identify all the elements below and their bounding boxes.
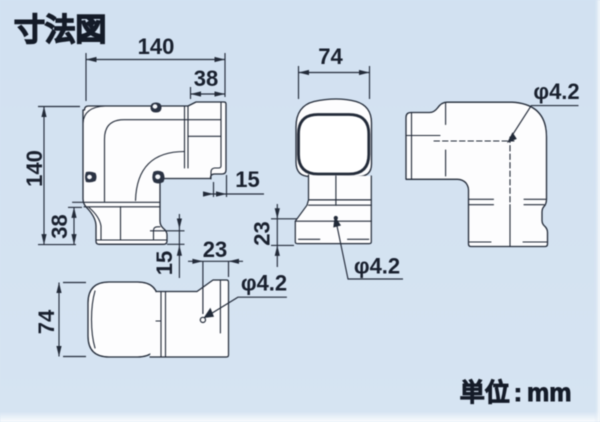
svg-text:38: 38	[47, 214, 72, 238]
svg-text:φ4.2: φ4.2	[533, 79, 579, 104]
svg-text:15: 15	[152, 251, 177, 275]
svg-text:38: 38	[194, 66, 218, 91]
svg-text:74: 74	[34, 309, 59, 334]
svg-text:23: 23	[203, 237, 227, 262]
svg-text:140: 140	[138, 34, 175, 59]
svg-text:74: 74	[318, 44, 343, 69]
svg-text:寸法図: 寸法図	[14, 13, 106, 48]
svg-text:φ4.2: φ4.2	[354, 254, 400, 279]
svg-text:単位:mm: 単位:mm	[460, 378, 572, 407]
svg-text:23: 23	[250, 221, 275, 245]
svg-text:15: 15	[235, 167, 259, 192]
svg-text:φ4.2: φ4.2	[241, 271, 287, 296]
svg-text:140: 140	[22, 150, 47, 187]
